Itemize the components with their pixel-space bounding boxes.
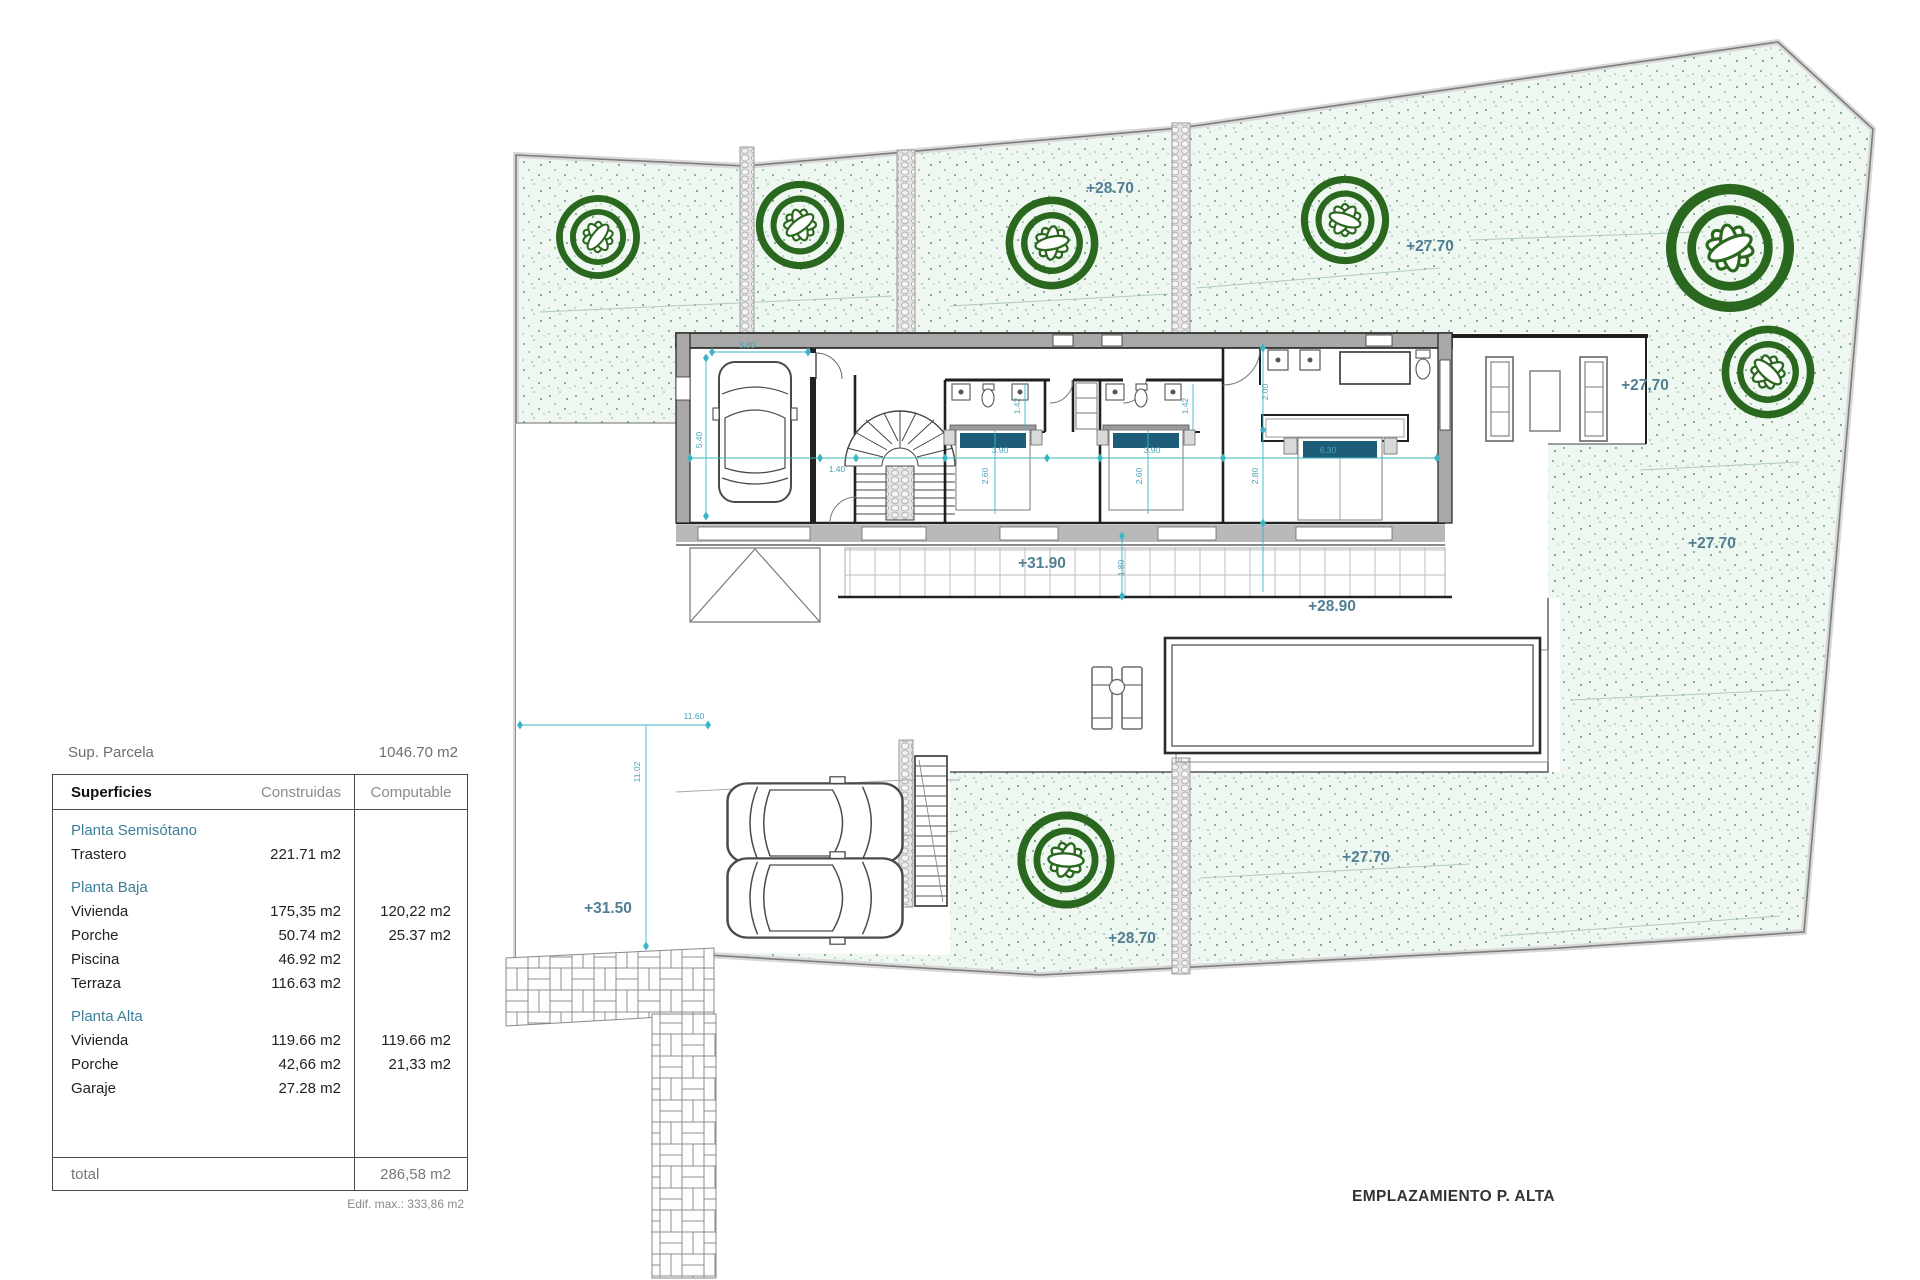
dim-label: 3.80 bbox=[739, 340, 756, 350]
swimming-pool bbox=[1165, 638, 1548, 762]
dim-label: 3.90 bbox=[992, 445, 1009, 455]
parcel-area-value: 1046.70 m2 bbox=[379, 744, 458, 761]
level-label: +28.70 bbox=[1108, 930, 1156, 947]
table-row: Trastero 221.71 m2 bbox=[53, 843, 467, 867]
table-row: Porche 50.74 m2 25.37 m2 bbox=[53, 924, 467, 948]
level-label: +28.70 bbox=[1086, 180, 1134, 197]
row-construidas: 119.66 m2 bbox=[239, 1029, 355, 1053]
dim-label: 3.90 bbox=[1144, 445, 1161, 455]
table-column-divider bbox=[354, 775, 355, 1190]
areas-panel: Sup. Parcela 1046.70 m2 Superficies Cons… bbox=[52, 744, 468, 1211]
level-label: +28.90 bbox=[1308, 598, 1356, 615]
areas-table: Superficies Construidas Computable Plant… bbox=[52, 774, 468, 1191]
row-label: Vivienda bbox=[53, 900, 239, 924]
total-label: total bbox=[53, 1166, 239, 1183]
dim-label: 1.40 bbox=[829, 464, 846, 474]
row-computable bbox=[355, 972, 467, 996]
row-label: Piscina bbox=[53, 948, 239, 972]
row-construidas: 175,35 m2 bbox=[239, 900, 355, 924]
max-edificability-note: Edif. max.: 333,86 m2 bbox=[52, 1197, 468, 1211]
level-label: +27,70 bbox=[1621, 377, 1669, 394]
row-computable: 120,22 m2 bbox=[355, 900, 467, 924]
level-label: +31.50 bbox=[584, 900, 632, 917]
dim-label: 11.60 bbox=[684, 711, 705, 721]
table-row: Terraza 116.63 m2 bbox=[53, 972, 467, 996]
row-construidas: 42,66 m2 bbox=[239, 1053, 355, 1077]
table-row: Vivienda 119.66 m2 119.66 m2 bbox=[53, 1029, 467, 1053]
table-row: Vivienda 175,35 m2 120,22 m2 bbox=[53, 900, 467, 924]
level-label: +27.70 bbox=[1342, 849, 1390, 866]
master-bed bbox=[1284, 438, 1397, 520]
street-paving bbox=[506, 948, 716, 1278]
plan-title: EMPLAZAMIENTO P. ALTA bbox=[1352, 1188, 1555, 1206]
garage-car-icon bbox=[713, 362, 797, 502]
parcel-area-label: Sup. Parcela bbox=[68, 744, 154, 761]
table-row: Porche 42,66 m2 21,33 m2 bbox=[53, 1053, 467, 1077]
dim-label: 2.00 bbox=[1260, 383, 1270, 400]
table-row: Garaje 27.28 m2 bbox=[53, 1077, 467, 1101]
deck-table-icon bbox=[1110, 680, 1125, 695]
dim-label: 2.80 bbox=[1250, 467, 1260, 484]
dim-label: 2.60 bbox=[1134, 467, 1144, 484]
section-title: Planta Alta bbox=[53, 1005, 467, 1029]
row-computable: 119.66 m2 bbox=[355, 1029, 467, 1053]
col-header-construidas: Construidas bbox=[221, 784, 355, 801]
row-construidas: 221.71 m2 bbox=[239, 843, 355, 867]
row-construidas: 27.28 m2 bbox=[239, 1077, 355, 1101]
dim-label: 1.80 bbox=[1116, 559, 1126, 576]
table-row: Piscina 46.92 m2 bbox=[53, 948, 467, 972]
dim-label: 1.42 bbox=[1012, 397, 1022, 414]
level-label: +27.70 bbox=[1688, 535, 1736, 552]
total-row: total 286,58 m2 bbox=[53, 1157, 467, 1190]
closet bbox=[1076, 383, 1097, 429]
row-computable: 21,33 m2 bbox=[355, 1053, 467, 1077]
coffee-table-icon bbox=[1530, 371, 1560, 431]
row-label: Porche bbox=[53, 1053, 239, 1077]
row-construidas: 46.92 m2 bbox=[239, 948, 355, 972]
row-label: Terraza bbox=[53, 972, 239, 996]
exterior-stair bbox=[915, 756, 947, 906]
row-label: Trastero bbox=[53, 843, 239, 867]
row-computable: 25.37 m2 bbox=[355, 924, 467, 948]
level-label: +27.70 bbox=[1406, 238, 1454, 255]
table-header-row: Superficies Construidas Computable bbox=[53, 775, 467, 810]
total-value: 286,58 m2 bbox=[239, 1166, 467, 1183]
car-icon bbox=[728, 777, 903, 869]
west-wall bbox=[676, 333, 690, 523]
row-label: Vivienda bbox=[53, 1029, 239, 1053]
south-facade bbox=[676, 523, 1445, 545]
section-title: Planta Semisótano bbox=[53, 819, 467, 843]
drawing-sheet: 3.80 5.40 1.40 3.90 2.60 1.42 3.90 2.60 … bbox=[0, 0, 1920, 1280]
col-header-superficies: Superficies bbox=[53, 784, 221, 801]
dim-label: 2.60 bbox=[980, 467, 990, 484]
row-computable bbox=[355, 1077, 467, 1101]
row-construidas: 116.63 m2 bbox=[239, 972, 355, 996]
bed-2 bbox=[1097, 425, 1195, 510]
row-computable bbox=[355, 948, 467, 972]
col-header-computable: Computable bbox=[355, 784, 467, 801]
driveway-cars bbox=[728, 777, 903, 944]
garage-ramp bbox=[690, 548, 820, 622]
wardrobe bbox=[1262, 415, 1408, 441]
row-label: Garaje bbox=[53, 1077, 239, 1101]
dim-label: 5.40 bbox=[694, 431, 704, 448]
bed-1 bbox=[944, 425, 1042, 510]
dim-label: 1.42 bbox=[1180, 397, 1190, 414]
dim-label: 11.02 bbox=[632, 761, 642, 782]
level-label: +31.90 bbox=[1018, 555, 1066, 572]
south-terrace-tiles bbox=[845, 548, 1445, 597]
row-construidas: 50.74 m2 bbox=[239, 924, 355, 948]
row-label: Porche bbox=[53, 924, 239, 948]
dim-label: 6.30 bbox=[1320, 445, 1337, 455]
row-computable bbox=[355, 843, 467, 867]
car-icon bbox=[728, 852, 903, 944]
section-title: Planta Baja bbox=[53, 876, 467, 900]
